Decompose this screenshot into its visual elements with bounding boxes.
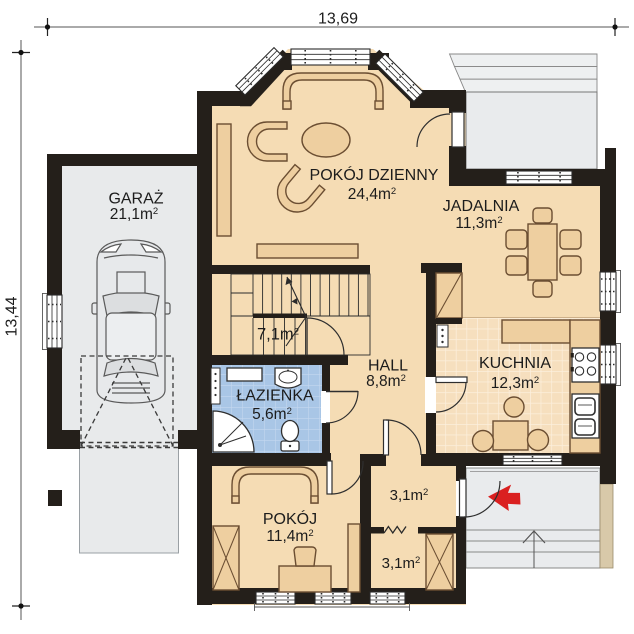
svg-text:POKÓJ DZIENNY: POKÓJ DZIENNY <box>310 165 439 184</box>
svg-text:HALL: HALL <box>368 358 408 375</box>
svg-text:24,4m2: 24,4m2 <box>348 186 396 203</box>
svg-text:3,1m2: 3,1m2 <box>390 487 429 504</box>
svg-text:12,3m2: 12,3m2 <box>491 375 539 392</box>
svg-text:KUCHNIA: KUCHNIA <box>479 355 551 372</box>
svg-text:7,1m2: 7,1m2 <box>257 326 299 344</box>
svg-text:3,1m2: 3,1m2 <box>382 555 421 572</box>
svg-text:5,6m2: 5,6m2 <box>252 406 292 423</box>
svg-text:ŁAZIENKA: ŁAZIENKA <box>236 388 314 405</box>
svg-text:JADALNIA: JADALNIA <box>443 198 520 215</box>
svg-text:21,1m2: 21,1m2 <box>110 206 158 223</box>
svg-text:GARAŻ: GARAŻ <box>108 189 163 208</box>
svg-text:POKÓJ: POKÓJ <box>263 509 317 528</box>
svg-text:13,69: 13,69 <box>318 11 358 28</box>
svg-text:11,3m2: 11,3m2 <box>455 215 502 232</box>
svg-text:8,8m2: 8,8m2 <box>366 373 406 390</box>
svg-text:11,4m2: 11,4m2 <box>266 528 313 545</box>
svg-text:13,44: 13,44 <box>4 296 21 336</box>
